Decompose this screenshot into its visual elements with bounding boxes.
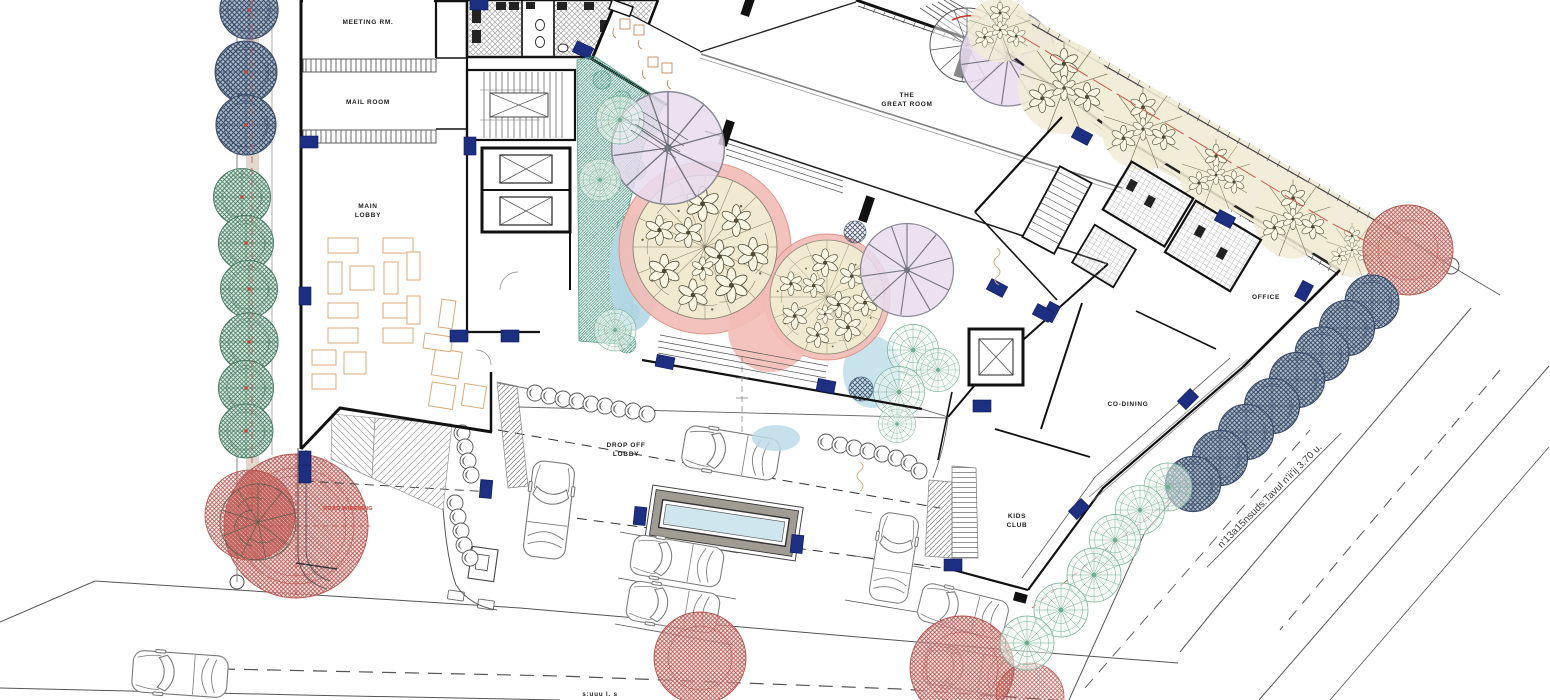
svg-text:THE: THE <box>899 92 914 99</box>
svg-text:CO-DINING: CO-DINING <box>1108 401 1149 408</box>
svg-text:LOBBY: LOBBY <box>613 451 639 458</box>
svg-text:CLUB: CLUB <box>1007 522 1028 529</box>
svg-text:s:uuu l. s: s:uuu l. s <box>582 691 618 698</box>
svg-text:OFFICE: OFFICE <box>1252 294 1280 301</box>
svg-text:DROP OFF: DROP OFF <box>606 442 645 449</box>
svg-text:MAIN: MAIN <box>358 203 377 210</box>
svg-text:GREAT ROOM: GREAT ROOM <box>881 101 932 108</box>
svg-text:LOBBY: LOBBY <box>355 212 381 219</box>
svg-text:KIDS: KIDS <box>1008 513 1026 520</box>
svg-text:MAIL ROOM: MAIL ROOM <box>346 99 390 106</box>
svg-text:MEETING RM.: MEETING RM. <box>342 19 393 26</box>
